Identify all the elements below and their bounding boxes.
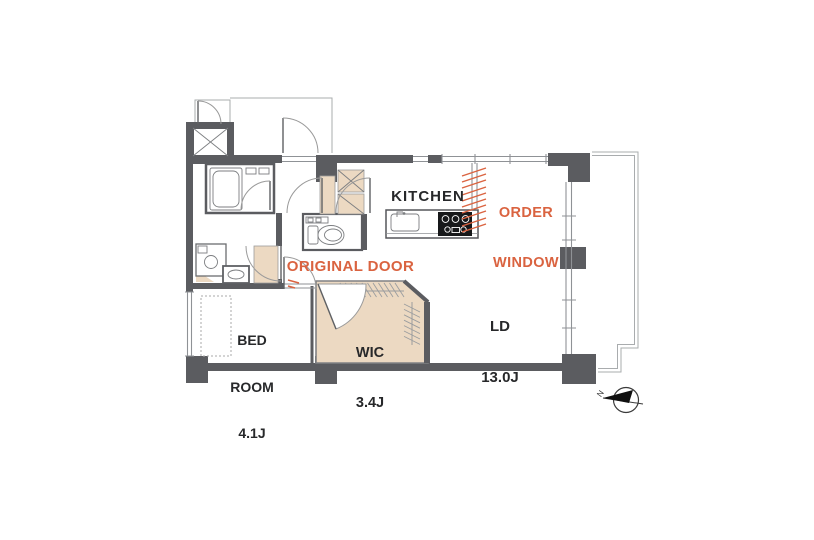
bedroom-label: BED ROOM 4.1J xyxy=(213,302,291,473)
original-door-label: ORIGINAL DOOR xyxy=(283,259,418,275)
order-window-line1: ORDER xyxy=(483,205,569,222)
ld-label: LD 13.0J xyxy=(458,284,542,420)
door-top-left xyxy=(198,101,221,124)
ld-name: LD xyxy=(458,318,542,335)
floorplan-page: N KITCHEN ORDER WINDOW ORIGINAL DOOR LD … xyxy=(0,0,814,540)
wic-name: WIC xyxy=(332,345,408,362)
wic-size: 3.4J xyxy=(332,395,408,412)
bedroom-name-line1: BED xyxy=(213,333,291,349)
hall-door-left xyxy=(287,178,322,213)
ld-size: 13.0J xyxy=(458,369,542,386)
kitchen-label: KITCHEN xyxy=(388,189,468,205)
bathroom xyxy=(206,164,274,213)
toilet-room xyxy=(303,214,362,250)
bedroom-size: 4.1J xyxy=(213,426,291,442)
pipe-shaft xyxy=(193,128,228,156)
washing-machine-icon xyxy=(223,266,249,283)
kitchen-counter xyxy=(386,210,478,238)
compass-icon: N xyxy=(595,388,643,413)
wic-label: WIC 3.4J xyxy=(332,312,408,444)
order-window-line2: WINDOW xyxy=(483,255,569,272)
compass-north-label: N xyxy=(595,389,606,399)
entrance-door xyxy=(283,118,318,153)
bedroom-name-line2: ROOM xyxy=(213,380,291,396)
washbasin-icon xyxy=(196,244,226,276)
